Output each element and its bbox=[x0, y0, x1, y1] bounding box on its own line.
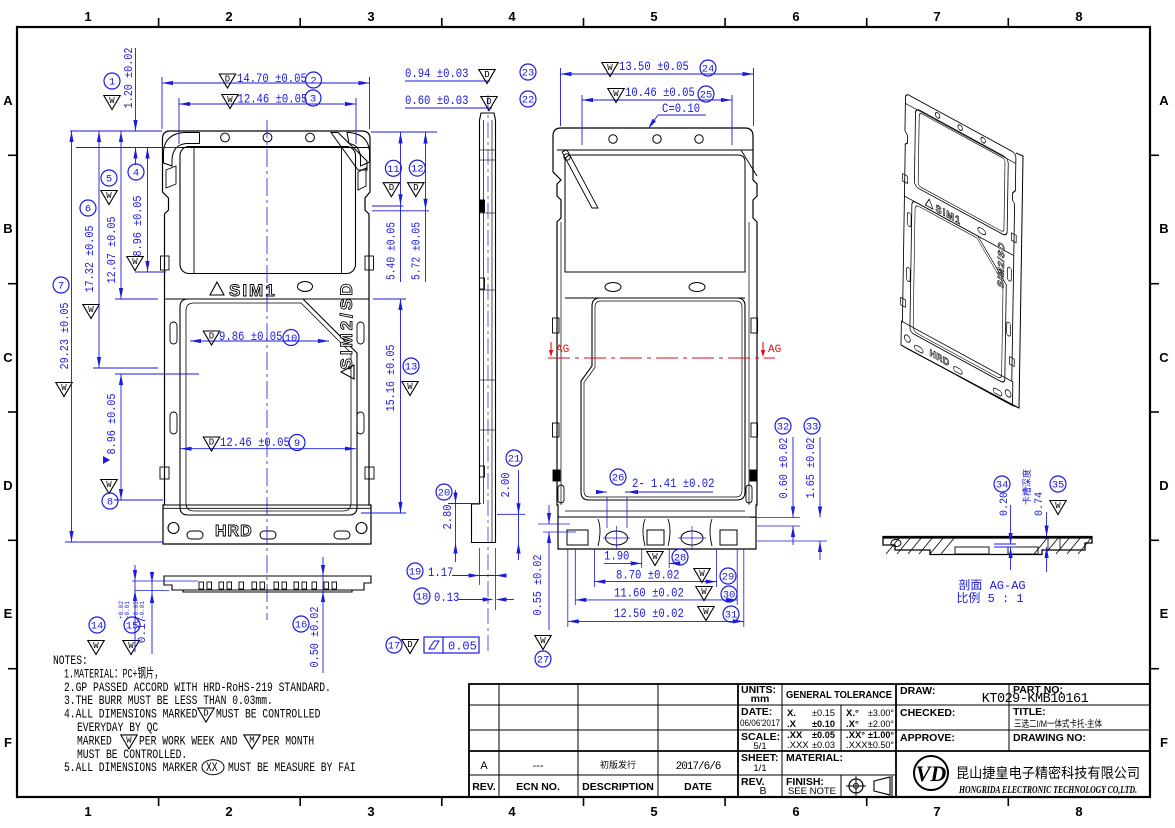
svg-text:C=0.10: C=0.10 bbox=[662, 101, 700, 116]
svg-text:D: D bbox=[209, 332, 214, 342]
svg-text:A: A bbox=[480, 760, 488, 772]
svg-text:7: 7 bbox=[933, 804, 940, 819]
svg-text:0.74: 0.74 bbox=[1034, 492, 1046, 516]
svg-text:34: 34 bbox=[996, 480, 1009, 492]
svg-text:5.72 ±0.05: 5.72 ±0.05 bbox=[410, 222, 424, 280]
svg-text:0.55 ±0.02: 0.55 ±0.02 bbox=[531, 555, 545, 616]
svg-text:7: 7 bbox=[58, 281, 64, 293]
svg-text:HONGRIDA ELECTRONIC TECHNOLOGY: HONGRIDA ELECTRONIC TECHNOLOGY CO,LTD. bbox=[958, 785, 1137, 796]
svg-text:6: 6 bbox=[792, 9, 799, 24]
svg-text:0.60 ±0.02: 0.60 ±0.02 bbox=[777, 438, 791, 499]
svg-text:SIM2/SD: SIM2/SD bbox=[996, 240, 1006, 291]
svg-text:AG: AG bbox=[556, 344, 569, 356]
svg-text:2- 1.41 ±0.02: 2- 1.41 ±0.02 bbox=[632, 476, 715, 491]
svg-text:W: W bbox=[126, 735, 132, 745]
svg-text:W: W bbox=[1055, 501, 1061, 511]
svg-text:比例 5 : 1: 比例 5 : 1 bbox=[956, 591, 1023, 606]
svg-text:5: 5 bbox=[650, 804, 657, 819]
svg-text:3: 3 bbox=[310, 94, 316, 106]
svg-text:DRAW:: DRAW: bbox=[900, 685, 935, 697]
svg-text:29.23 ±0.05: 29.23 ±0.05 bbox=[58, 303, 72, 370]
svg-text:1/1: 1/1 bbox=[753, 763, 766, 774]
svg-text:8.70 ±0.02: 8.70 ±0.02 bbox=[616, 568, 680, 583]
svg-text:W: W bbox=[703, 607, 709, 617]
svg-text:W: W bbox=[227, 95, 233, 105]
svg-text:5.40 ±0.05: 5.40 ±0.05 bbox=[385, 222, 399, 280]
svg-text:X.°: X.° bbox=[846, 708, 859, 719]
svg-text:2: 2 bbox=[225, 9, 232, 24]
svg-text:D: D bbox=[203, 709, 208, 719]
svg-text:E: E bbox=[4, 606, 13, 621]
svg-text:5/1: 5/1 bbox=[753, 741, 766, 752]
svg-text:W: W bbox=[128, 641, 134, 651]
svg-text:W: W bbox=[701, 587, 707, 597]
svg-text:1.17: 1.17 bbox=[428, 565, 453, 580]
svg-text:D: D bbox=[1159, 478, 1168, 493]
svg-text:0.05: 0.05 bbox=[448, 640, 477, 654]
svg-text:±3.00°: ±3.00° bbox=[868, 708, 894, 718]
svg-text:14: 14 bbox=[91, 621, 104, 633]
svg-text:20: 20 bbox=[438, 488, 451, 500]
svg-text:06/06'2017: 06/06'2017 bbox=[740, 718, 780, 728]
svg-text:D: D bbox=[484, 70, 489, 80]
svg-text:PER MONTH: PER MONTH bbox=[262, 733, 314, 748]
svg-text:2.80: 2.80 bbox=[441, 505, 455, 530]
svg-text:初版发行: 初版发行 bbox=[600, 759, 636, 770]
svg-text:W: W bbox=[652, 552, 658, 562]
svg-text:8: 8 bbox=[1075, 804, 1082, 819]
svg-text:.XXX: .XXX bbox=[787, 740, 809, 751]
svg-text:12.07 ±0.05: 12.07 ±0.05 bbox=[105, 217, 119, 284]
svg-text:1: 1 bbox=[109, 77, 115, 89]
svg-text:D: D bbox=[3, 478, 12, 493]
svg-text:10: 10 bbox=[285, 333, 298, 345]
svg-text:2.00: 2.00 bbox=[499, 473, 513, 498]
svg-text:卡槽深度: 卡槽深度 bbox=[1021, 469, 1033, 505]
svg-text:13: 13 bbox=[405, 362, 418, 374]
svg-text:B: B bbox=[3, 221, 12, 236]
svg-text:VD: VD bbox=[916, 761, 947, 786]
svg-text:SEE NOTE: SEE NOTE bbox=[788, 786, 836, 797]
svg-text:F: F bbox=[1160, 735, 1168, 750]
svg-text:SIM1: SIM1 bbox=[229, 281, 277, 300]
svg-text:KT029-KMB10161: KT029-KMB10161 bbox=[982, 692, 1089, 707]
svg-text:0.50 ±0.02: 0.50 ±0.02 bbox=[308, 607, 322, 668]
svg-text:XX: XX bbox=[206, 760, 218, 775]
svg-text:27: 27 bbox=[537, 655, 550, 667]
svg-text:13.50 ±0.05: 13.50 ±0.05 bbox=[619, 59, 689, 74]
svg-text:8.96 ±0.05: 8.96 ±0.05 bbox=[131, 196, 145, 257]
svg-text:8: 8 bbox=[107, 497, 113, 509]
svg-text:C: C bbox=[1159, 350, 1169, 365]
svg-text:28: 28 bbox=[674, 553, 687, 565]
svg-text:1.20 ±0.02: 1.20 ±0.02 bbox=[122, 48, 136, 109]
svg-text:AG: AG bbox=[768, 344, 781, 356]
svg-text:16: 16 bbox=[295, 620, 308, 632]
svg-text:±0.10: ±0.10 bbox=[812, 719, 835, 730]
svg-text:C: C bbox=[3, 350, 13, 365]
svg-text:±0.50°: ±0.50° bbox=[868, 740, 894, 750]
svg-text:.X: .X bbox=[787, 719, 797, 730]
svg-text:17.32 ±0.05: 17.32 ±0.05 bbox=[83, 226, 97, 293]
svg-text:1: 1 bbox=[84, 804, 91, 819]
svg-text:MATERIAL:: MATERIAL: bbox=[786, 752, 843, 764]
svg-text:4: 4 bbox=[508, 9, 516, 24]
svg-text:22: 22 bbox=[522, 95, 535, 107]
svg-text:0.13: 0.13 bbox=[434, 590, 459, 605]
svg-text:±1.00°: ±1.00° bbox=[868, 730, 894, 740]
svg-text:D: D bbox=[225, 75, 230, 85]
svg-text:mm: mm bbox=[751, 693, 770, 705]
svg-text:D: D bbox=[413, 183, 418, 193]
svg-text:W: W bbox=[106, 191, 112, 201]
svg-text:APPROVE:: APPROVE: bbox=[900, 732, 955, 744]
svg-text:±2.00°: ±2.00° bbox=[868, 719, 894, 729]
svg-text:9.86 ±0.05: 9.86 ±0.05 bbox=[219, 329, 283, 344]
svg-text:D: D bbox=[407, 640, 412, 650]
svg-text:17: 17 bbox=[388, 641, 401, 653]
svg-text:4: 4 bbox=[133, 168, 139, 180]
svg-text:---: --- bbox=[533, 760, 544, 772]
svg-text:剖面 AG-AG: 剖面 AG-AG bbox=[958, 578, 1025, 593]
svg-text:12: 12 bbox=[411, 164, 424, 176]
svg-text:W: W bbox=[607, 63, 613, 73]
svg-text:W: W bbox=[540, 636, 546, 646]
svg-text:±0.03: ±0.03 bbox=[812, 740, 835, 751]
svg-text:SIM2/SD: SIM2/SD bbox=[337, 280, 356, 369]
svg-text:29: 29 bbox=[722, 572, 735, 584]
svg-text:D: D bbox=[486, 97, 491, 107]
svg-text:W: W bbox=[93, 641, 99, 651]
svg-text:A: A bbox=[1159, 93, 1169, 108]
svg-text:W: W bbox=[109, 96, 115, 106]
svg-text:1.65 ±0.02: 1.65 ±0.02 bbox=[804, 438, 818, 499]
svg-text:9: 9 bbox=[294, 438, 300, 450]
svg-text:A: A bbox=[3, 93, 13, 108]
svg-text:HRD: HRD bbox=[215, 523, 253, 540]
svg-text:REV.: REV. bbox=[472, 781, 496, 793]
svg-text:5: 5 bbox=[106, 174, 112, 186]
svg-text:-0.01: -0.01 bbox=[139, 601, 146, 619]
svg-text:2: 2 bbox=[310, 76, 316, 88]
svg-text:TITLE:: TITLE: bbox=[1013, 706, 1046, 718]
svg-text:0.20: 0.20 bbox=[999, 492, 1011, 516]
svg-text:35: 35 bbox=[1052, 480, 1065, 492]
svg-text:19: 19 bbox=[409, 567, 422, 579]
svg-text:昆山捷皇电子精密科技有限公司: 昆山捷皇电子精密科技有限公司 bbox=[956, 765, 1140, 781]
svg-text:W: W bbox=[106, 480, 112, 490]
svg-text:12.46 ±0.05: 12.46 ±0.05 bbox=[220, 435, 290, 450]
svg-text:7: 7 bbox=[933, 9, 940, 24]
svg-text:11: 11 bbox=[387, 164, 400, 176]
svg-text:CHECKED:: CHECKED: bbox=[900, 707, 955, 719]
svg-text:W: W bbox=[613, 89, 619, 99]
svg-text:0.17: 0.17 bbox=[137, 617, 149, 643]
svg-text:W: W bbox=[699, 569, 705, 579]
svg-text:26: 26 bbox=[612, 473, 625, 485]
svg-text:12.50 ±0.02: 12.50 ±0.02 bbox=[614, 606, 684, 621]
svg-text:5.ALL DIMENSIONS MARKER: 5.ALL DIMENSIONS MARKER bbox=[64, 760, 198, 775]
svg-text:3: 3 bbox=[367, 804, 374, 819]
svg-text:ECN NO.: ECN NO. bbox=[516, 781, 560, 793]
svg-text:3: 3 bbox=[367, 9, 374, 24]
svg-text:W: W bbox=[132, 257, 138, 267]
svg-text:11.60 ±0.02: 11.60 ±0.02 bbox=[614, 586, 684, 601]
svg-text:DESCRIPTION: DESCRIPTION bbox=[582, 781, 654, 793]
svg-text:DATE:: DATE: bbox=[741, 706, 772, 718]
svg-text:DATE: DATE bbox=[684, 781, 712, 793]
svg-text:2017/6/6: 2017/6/6 bbox=[676, 761, 721, 773]
svg-text:W: W bbox=[407, 382, 413, 392]
svg-text:D: D bbox=[209, 438, 214, 448]
svg-text:D: D bbox=[389, 183, 394, 193]
svg-text:GENERAL TOLERANCE: GENERAL TOLERANCE bbox=[786, 689, 892, 701]
svg-text:33: 33 bbox=[806, 422, 819, 434]
svg-text:MUST BE CONTROLLED: MUST BE CONTROLLED bbox=[216, 707, 321, 722]
svg-text:三选二I/M一体式卡托-主体: 三选二I/M一体式卡托-主体 bbox=[1014, 718, 1102, 730]
svg-text:8.96 ±0.05: 8.96 ±0.05 bbox=[105, 394, 119, 455]
svg-text:B: B bbox=[1159, 221, 1168, 236]
svg-text:18: 18 bbox=[416, 592, 429, 604]
svg-text:5: 5 bbox=[650, 9, 657, 24]
svg-text:-0.01: -0.01 bbox=[124, 601, 131, 619]
svg-text:.X°: .X° bbox=[846, 719, 859, 730]
svg-text:15.16 ±0.05: 15.16 ±0.05 bbox=[384, 345, 398, 412]
svg-text:30: 30 bbox=[723, 590, 736, 602]
svg-text:8: 8 bbox=[1075, 9, 1082, 24]
svg-text:24: 24 bbox=[702, 64, 715, 76]
svg-text:MUST BE MEASURE BY FAI: MUST BE MEASURE BY FAI bbox=[228, 760, 356, 775]
svg-text:0.60 ±0.03: 0.60 ±0.03 bbox=[405, 93, 469, 108]
svg-text:1.90: 1.90 bbox=[604, 549, 629, 564]
svg-text:W: W bbox=[61, 383, 67, 393]
svg-text:25: 25 bbox=[700, 90, 713, 102]
svg-text:6: 6 bbox=[85, 204, 91, 216]
svg-text:23: 23 bbox=[522, 68, 535, 80]
svg-text:31: 31 bbox=[725, 610, 738, 622]
svg-text:F: F bbox=[4, 735, 12, 750]
svg-text:12.46 ±0.05: 12.46 ±0.05 bbox=[238, 92, 308, 107]
svg-text:B: B bbox=[759, 785, 766, 797]
svg-text:14.70 ±0.05: 14.70 ±0.05 bbox=[237, 71, 307, 86]
svg-text:4: 4 bbox=[508, 804, 516, 819]
svg-text:2: 2 bbox=[225, 804, 232, 819]
svg-text:M: M bbox=[249, 735, 254, 745]
svg-text:±0.15: ±0.15 bbox=[812, 708, 835, 719]
svg-text:DRAWING NO:: DRAWING NO: bbox=[1013, 732, 1086, 744]
svg-text:X.: X. bbox=[787, 708, 796, 719]
svg-text:W: W bbox=[88, 305, 94, 315]
svg-text:1: 1 bbox=[84, 9, 91, 24]
svg-text:E: E bbox=[1160, 606, 1169, 621]
svg-text:32: 32 bbox=[777, 422, 790, 434]
svg-text:0.94 ±0.03: 0.94 ±0.03 bbox=[405, 66, 469, 81]
svg-text:10.46 ±0.05: 10.46 ±0.05 bbox=[625, 85, 695, 100]
svg-text:6: 6 bbox=[792, 804, 799, 819]
svg-text:21: 21 bbox=[508, 454, 521, 466]
